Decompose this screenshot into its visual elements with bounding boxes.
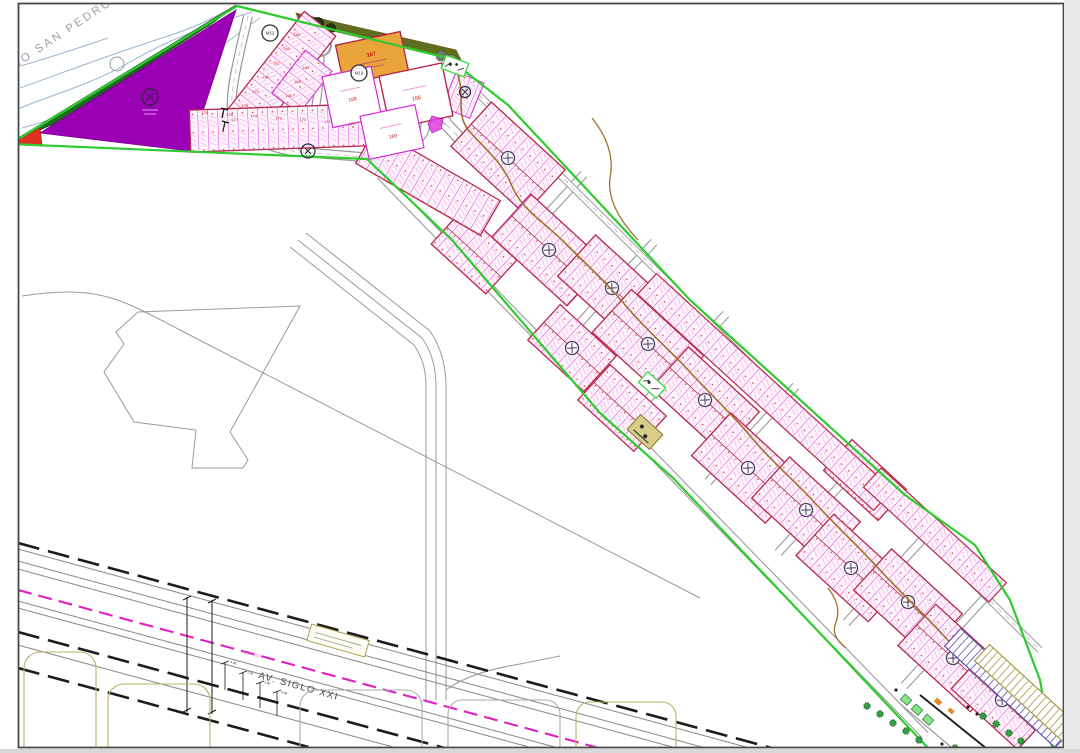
playground-icon (441, 55, 468, 76)
tree-icon (903, 728, 909, 734)
gas-line-label: GAS NAT. (242, 649, 261, 659)
right-margin (1064, 0, 1080, 753)
lot-number: 176 (202, 110, 209, 115)
dimension-text: 3.00 (281, 690, 288, 696)
tree-icon (877, 711, 883, 717)
lot-number: 181 (273, 60, 280, 65)
tree-icon (1006, 730, 1012, 736)
lot-number: 184 (303, 65, 310, 70)
river-label: RIO SAN PEDRO (5, 0, 115, 75)
dimension-text: 1.50 (247, 670, 254, 676)
lot-number: 173 (275, 115, 282, 120)
lot-number: 179 (252, 89, 259, 94)
lot-number: 177 (231, 117, 238, 122)
site-plan-drawing: RIO SAN PEDRO (0, 0, 1080, 753)
lot-number: 180 (262, 75, 269, 80)
future-parcels (24, 652, 676, 753)
dimension-text: 1.00 (264, 680, 271, 686)
block-marker-label: M19 (355, 71, 364, 76)
tree-icon (1018, 738, 1024, 744)
lot-number: 182 (283, 46, 290, 51)
lot-number: 186 (286, 93, 293, 98)
lot-number: 174 (251, 114, 258, 119)
tree-icon (980, 713, 986, 719)
tree-icon (993, 721, 999, 727)
lot-number: 170 (349, 121, 356, 126)
dimension-lines (183, 596, 281, 716)
lot-number: 183 (294, 32, 301, 37)
bottom-margin (0, 749, 1080, 753)
tree-icon (890, 720, 896, 726)
tree-icon (916, 737, 922, 743)
lot-number: 178 (242, 103, 249, 108)
lot-number: 185 (294, 79, 301, 84)
site-plan-viewer: RIO SAN PEDRO (0, 0, 1080, 753)
lot-number: 171 (324, 119, 331, 124)
tree-icon (864, 703, 870, 709)
block-marker-label: M12 (266, 31, 275, 36)
lot-number: 175 (226, 112, 233, 117)
dimension-text: 4.00 (230, 660, 237, 666)
avenue-corridor (18, 543, 772, 748)
lot-number: 172 (300, 117, 307, 122)
